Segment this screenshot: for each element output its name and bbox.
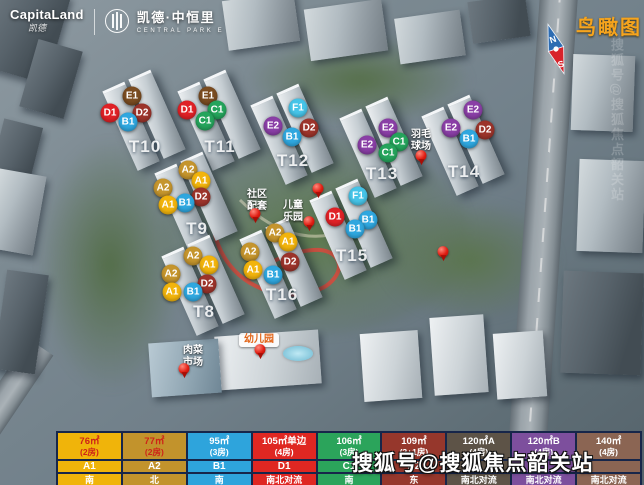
project-subtitle: CENTRAL PARK E bbox=[137, 28, 224, 34]
legend-area: 95㎡ bbox=[188, 436, 251, 447]
legend-area-cell: 77㎡ (2房) bbox=[123, 433, 186, 461]
legend-area: 76㎡ bbox=[58, 436, 121, 447]
legend-area: 120㎡B bbox=[512, 436, 575, 447]
view-title: 鸟瞰图 bbox=[576, 11, 642, 40]
legend-orientation: 南 bbox=[188, 474, 251, 485]
legend-area-cell: 95㎡ (3房) bbox=[188, 433, 251, 461]
legend-rooms: (2房) bbox=[58, 447, 121, 457]
aerial-view-image: T10T11T12T13T14T9T15T16T8 社区 配套儿童 乐园羽毛 球… bbox=[0, 0, 644, 485]
legend-orientation: 南 bbox=[58, 474, 121, 485]
map-pin-icon bbox=[255, 344, 266, 355]
divider bbox=[94, 9, 95, 35]
map-pin-icon bbox=[416, 150, 427, 161]
legend-unit-code: A1 bbox=[58, 461, 121, 474]
sohu-watermark: 搜狐号@搜狐焦点韶关站 bbox=[352, 447, 593, 477]
legend-orientation: 北 bbox=[123, 474, 186, 485]
project-name-block: 凯德·中恒里 CENTRAL PARK E bbox=[137, 7, 224, 34]
project-emblem-icon bbox=[105, 9, 129, 33]
legend-column: 77㎡ (2房) A2 北 bbox=[121, 433, 186, 485]
legend-rooms: (3房) bbox=[188, 447, 251, 457]
legend-unit-code: D1 bbox=[253, 461, 316, 474]
legend-area: 106㎡ bbox=[318, 436, 381, 447]
legend-area: 120㎡A bbox=[447, 436, 510, 447]
legend-area: 77㎡ bbox=[123, 436, 186, 447]
legend-area-cell: 76㎡ (2房) bbox=[58, 433, 121, 461]
legend-area: 109㎡ bbox=[382, 436, 445, 447]
brand-name: CapitaLand bbox=[10, 7, 84, 22]
vertical-watermark: 搜狐号@搜狐焦点韶关站 bbox=[607, 38, 626, 368]
legend-area: 105㎡单边 bbox=[253, 436, 316, 447]
capitaland-logo: CapitaLand 凯德 bbox=[10, 7, 84, 34]
map-pin-icon bbox=[179, 363, 190, 374]
legend-column: 105㎡单边 (4房) D1 南北对流 bbox=[251, 433, 316, 485]
legend-column: 95㎡ (3房) B1 南 bbox=[186, 433, 251, 485]
map-pin-icon bbox=[304, 216, 315, 227]
map-pin-icon bbox=[313, 183, 324, 194]
project-name: 凯德·中恒里 bbox=[137, 7, 224, 26]
legend-area: 140㎡ bbox=[577, 436, 640, 447]
legend-orientation: 南北对流 bbox=[253, 474, 316, 485]
legend-rooms: (2房) bbox=[123, 447, 186, 457]
legend-unit-code: A2 bbox=[123, 461, 186, 474]
legend-area-cell: 105㎡单边 (4房) bbox=[253, 433, 316, 461]
pin-layer bbox=[0, 0, 644, 485]
map-pin-icon bbox=[438, 246, 449, 257]
header-brand-bar: CapitaLand 凯德 凯德·中恒里 CENTRAL PARK E bbox=[10, 7, 224, 35]
legend-column: 76㎡ (2房) A1 南 bbox=[58, 433, 121, 485]
legend-rooms: (4房) bbox=[253, 447, 316, 457]
brand-script: 凯德 bbox=[28, 21, 84, 34]
legend-unit-code: B1 bbox=[188, 461, 251, 474]
map-pin-icon bbox=[250, 208, 261, 219]
